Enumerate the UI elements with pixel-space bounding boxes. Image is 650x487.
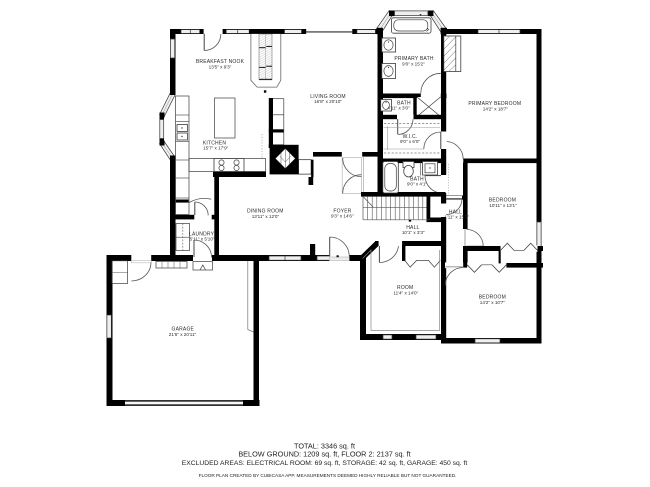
svg-text:1'11" x 15'7": 1'11" x 15'7" — [444, 215, 469, 220]
svg-text:5'11" x 5'10": 5'11" x 5'10" — [190, 236, 215, 241]
svg-text:16'8" x 20'10": 16'8" x 20'10" — [314, 99, 342, 104]
svg-text:11'4" x 14'0": 11'4" x 14'0" — [393, 290, 418, 295]
svg-text:13'5" x 9'3": 13'5" x 9'3" — [209, 65, 232, 70]
svg-text:9'3" x 14'6": 9'3" x 14'6" — [331, 214, 354, 219]
svg-text:21'6" x 20'11": 21'6" x 20'11" — [169, 332, 197, 337]
svg-text:14'2" x 10'7": 14'2" x 10'7" — [480, 300, 506, 305]
svg-text:14'2" x 18'7": 14'2" x 18'7" — [483, 106, 509, 111]
svg-text:10'1" x 3'3": 10'1" x 3'3" — [402, 230, 425, 235]
svg-text:13'11" x 12'0": 13'11" x 12'0" — [252, 214, 280, 219]
svg-text:15'7" x 17'9": 15'7" x 17'9" — [203, 146, 229, 151]
svg-text:BELOW GROUND: 1209 sq. ft, FLO: BELOW GROUND: 1209 sq. ft, FLOOR 2: 2137… — [238, 450, 410, 459]
svg-text:4'11" x 3'0": 4'11" x 3'0" — [387, 106, 410, 111]
svg-text:9'0" x 6'0": 9'0" x 6'0" — [400, 139, 420, 144]
svg-text:EXCLUDED AREAS: ELECTRICAL ROO: EXCLUDED AREAS: ELECTRICAL ROOM: 69 sq. … — [182, 460, 468, 467]
svg-text:9'0" x 15'2": 9'0" x 15'2" — [402, 61, 425, 66]
svg-text:FLOOR PLAN CREATED BY CUBICASA: FLOOR PLAN CREATED BY CUBICASA APP. MEAS… — [199, 473, 457, 478]
svg-text:9'0" x 4'1": 9'0" x 4'1" — [407, 182, 427, 187]
svg-text:10'11" x 13'1": 10'11" x 13'1" — [489, 203, 517, 208]
